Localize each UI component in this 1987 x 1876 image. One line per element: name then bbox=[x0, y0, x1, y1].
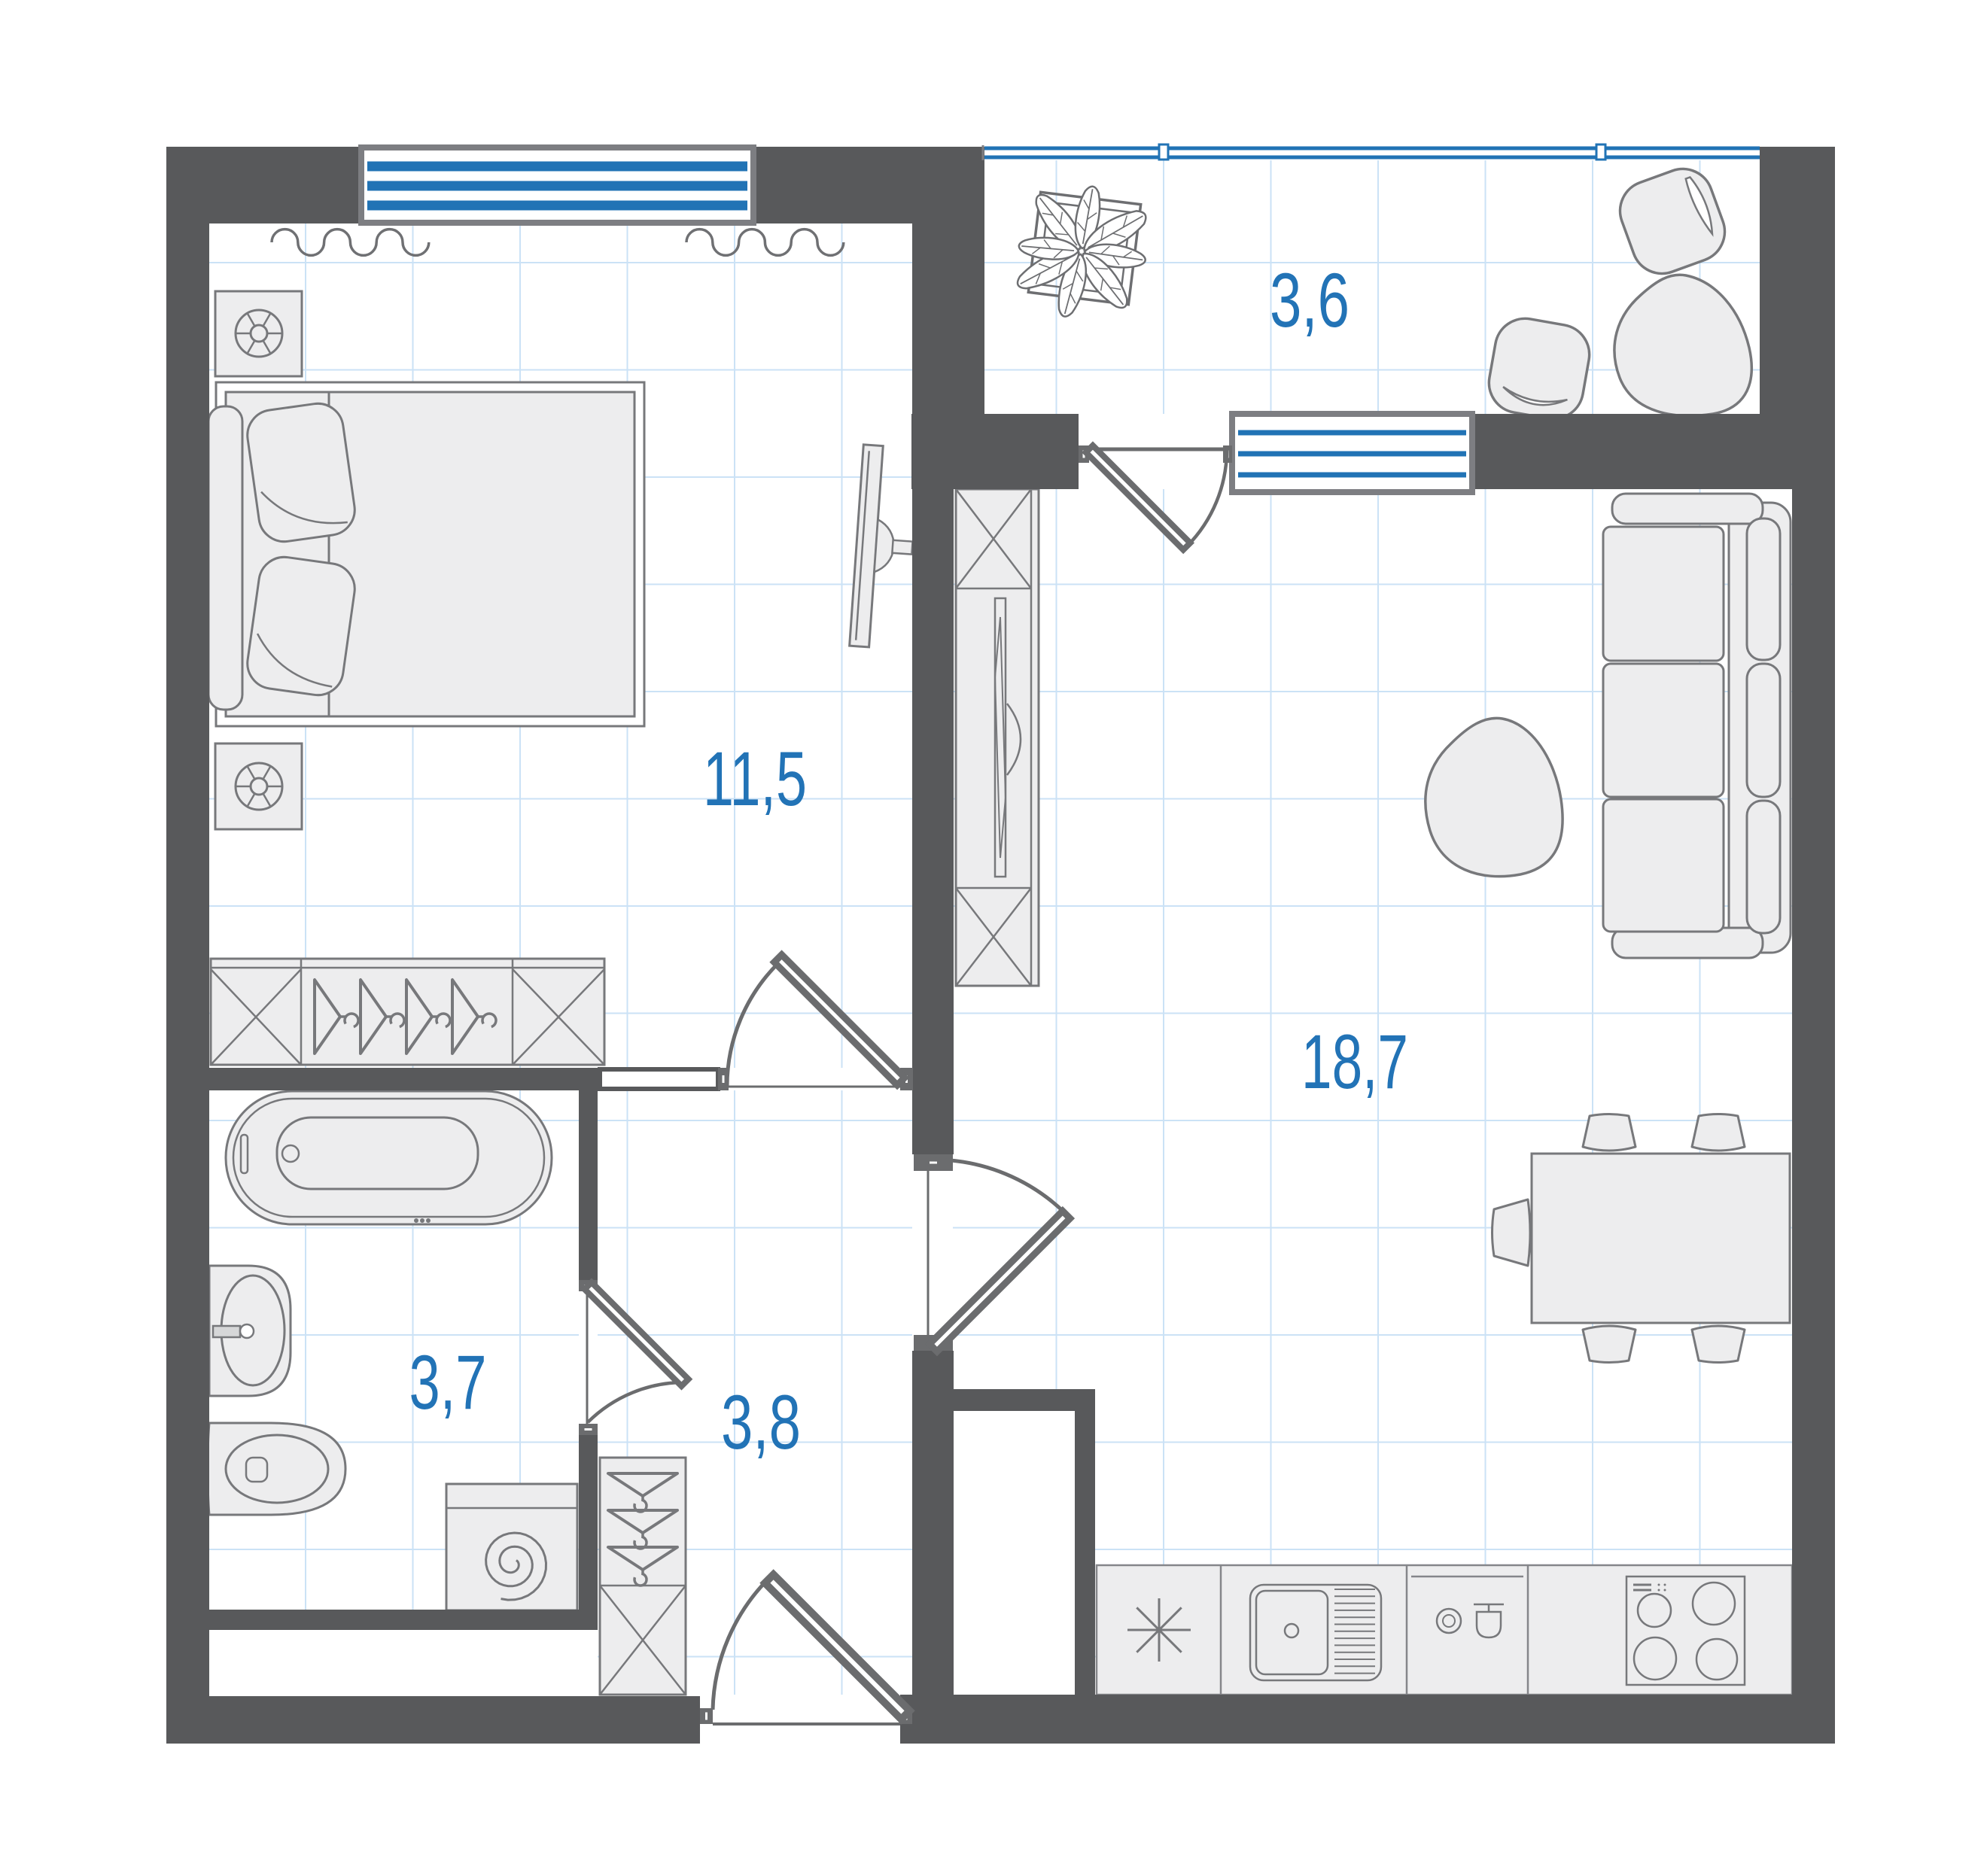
svg-text:18,7: 18,7 bbox=[1301, 1019, 1408, 1105]
svg-text:11,5: 11,5 bbox=[703, 736, 807, 822]
svg-text:3,6: 3,6 bbox=[1270, 257, 1350, 343]
svg-text:3,8: 3,8 bbox=[721, 1379, 801, 1465]
svg-text:3,7: 3,7 bbox=[409, 1339, 487, 1425]
